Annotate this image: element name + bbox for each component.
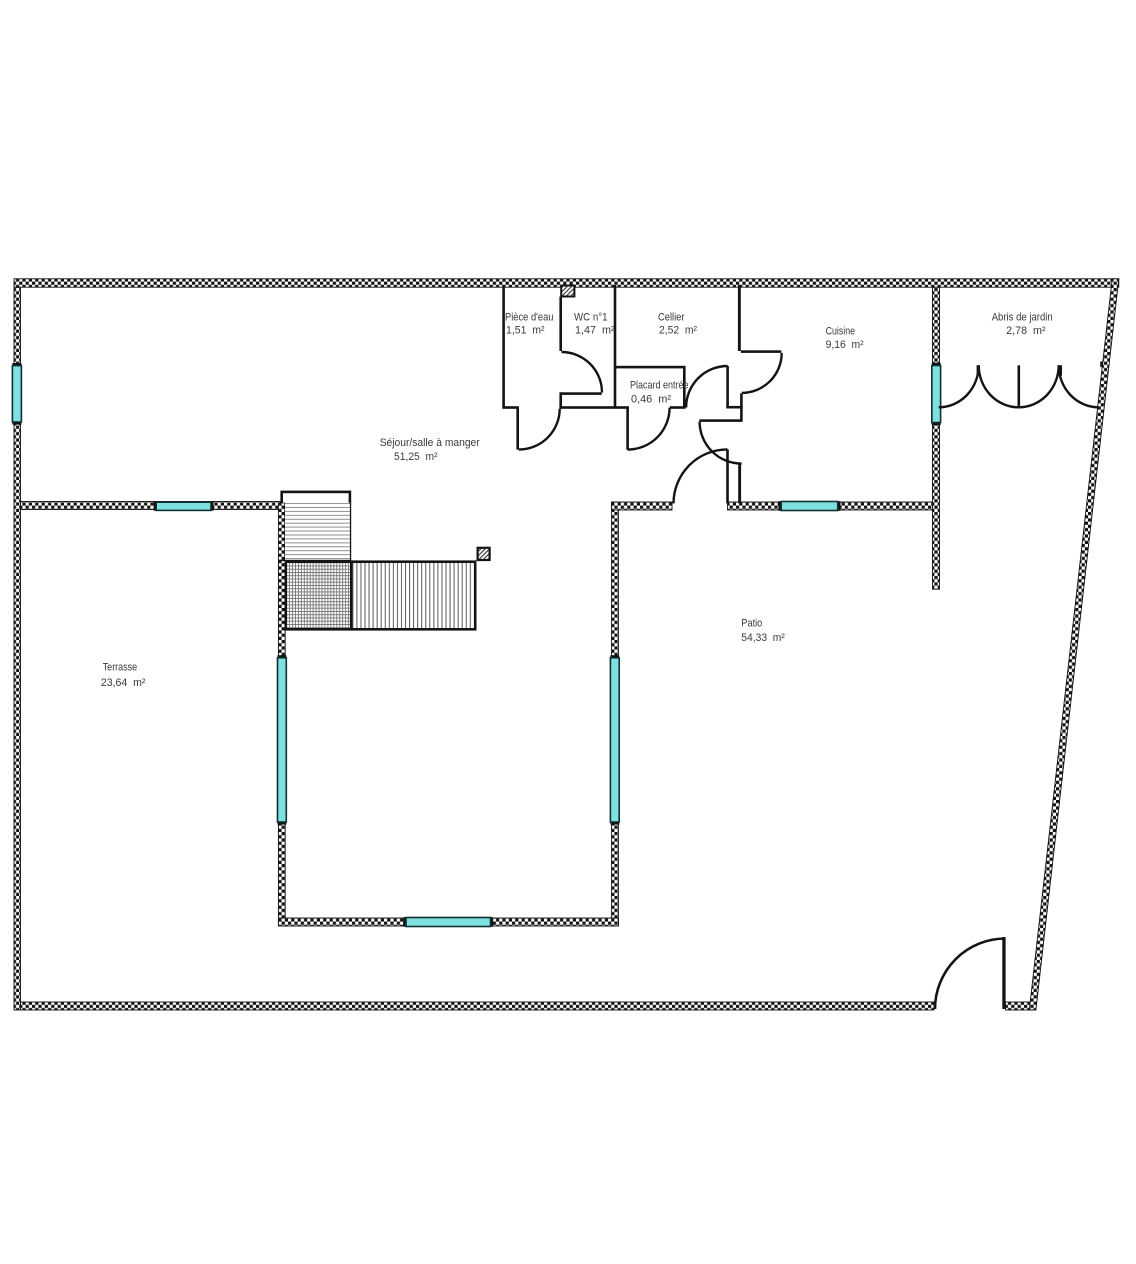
- svg-text:23,64 m²: 23,64 m²: [101, 677, 146, 689]
- svg-text:Séjour/salle à manger: Séjour/salle à manger: [380, 437, 480, 449]
- svg-text:2,78 m²: 2,78 m²: [1006, 325, 1046, 337]
- svg-text:Terrasse: Terrasse: [103, 662, 138, 674]
- svg-text:2,52 m²: 2,52 m²: [659, 325, 697, 337]
- svg-text:Abris de jardin: Abris de jardin: [992, 311, 1053, 323]
- svg-text:Cellier: Cellier: [658, 311, 685, 323]
- svg-text:1,51 m²: 1,51 m²: [506, 325, 545, 337]
- svg-text:Patio: Patio: [741, 617, 762, 629]
- svg-text:WC n°1: WC n°1: [574, 311, 608, 323]
- svg-text:Cuisine: Cuisine: [826, 325, 856, 337]
- svg-text:1,47 m²: 1,47 m²: [575, 325, 615, 337]
- svg-text:Placard entrée: Placard entrée: [630, 379, 689, 391]
- svg-text:51,25 m²: 51,25 m²: [394, 451, 438, 463]
- svg-text:54,33 m²: 54,33 m²: [741, 632, 785, 644]
- svg-text:9,16 m²: 9,16 m²: [826, 339, 864, 351]
- svg-text:Pièce d'eau: Pièce d'eau: [505, 311, 554, 323]
- svg-text:0,46 m²: 0,46 m²: [631, 393, 671, 405]
